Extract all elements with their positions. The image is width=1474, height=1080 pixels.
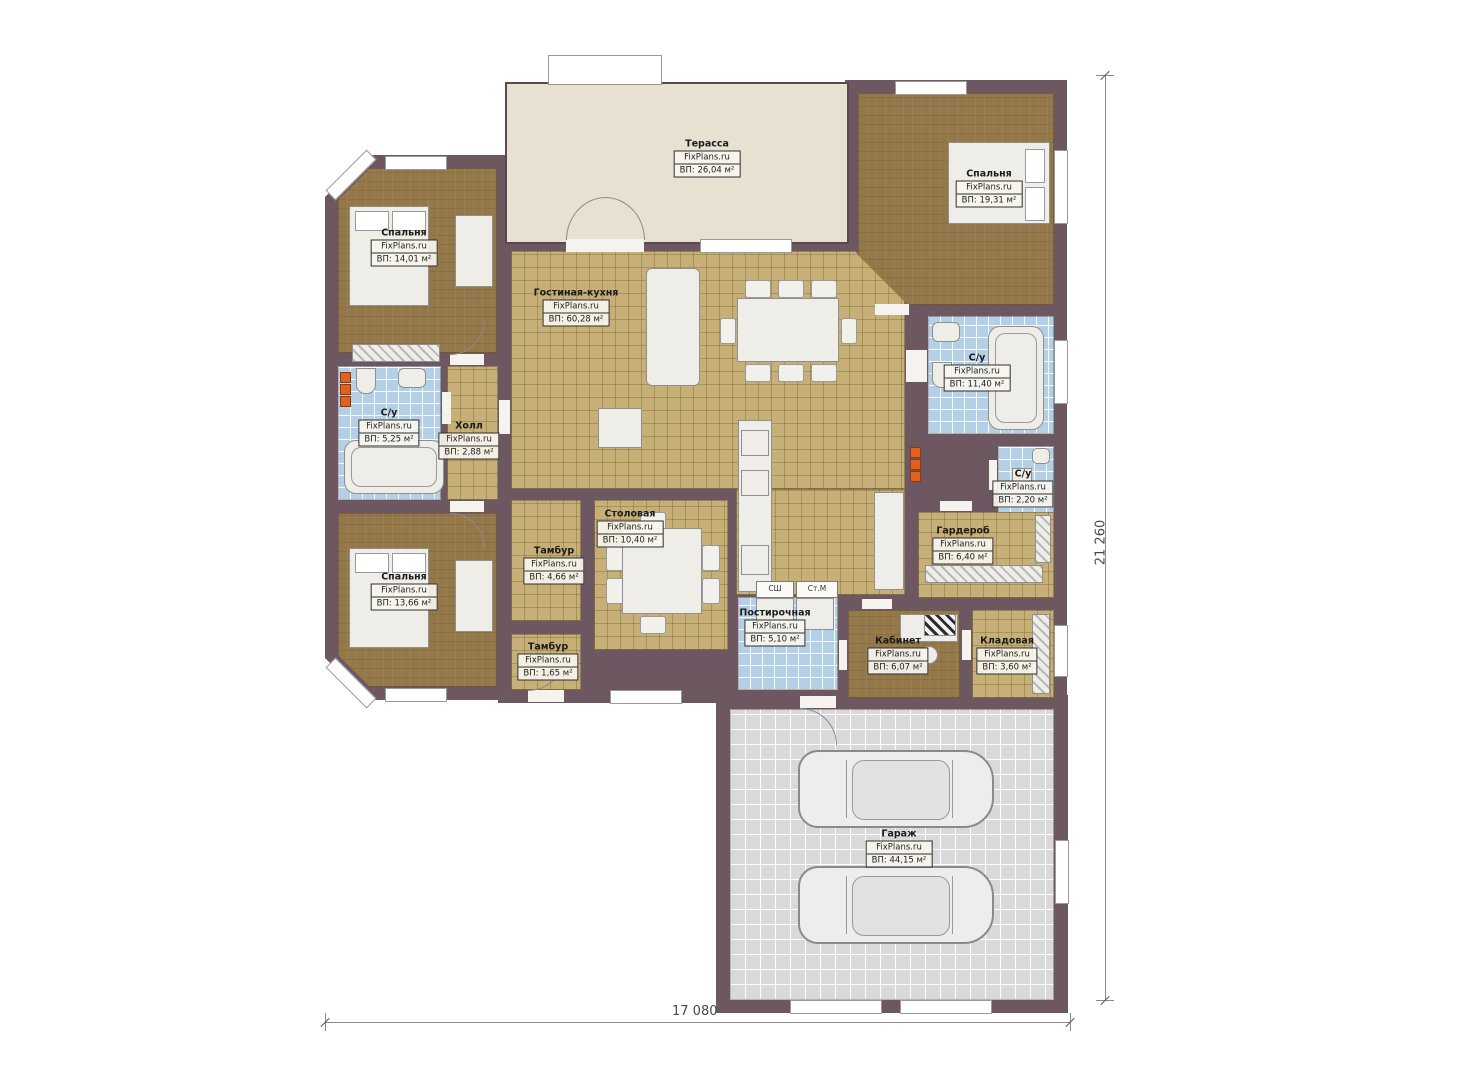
- room-label-wardrobe: Гардероб FixPlans.ru ВП: 6,40 м²: [932, 526, 993, 565]
- car-windshield: [846, 760, 847, 818]
- door-gap-storage: [962, 630, 971, 660]
- chair: [811, 364, 837, 382]
- room-area: ВП: 13,66 м²: [372, 598, 437, 610]
- room-area: ВП: 4,66 м²: [524, 572, 583, 584]
- window: [1054, 340, 1068, 404]
- car: [798, 866, 994, 944]
- door-gap-bathroom-right: [906, 350, 927, 382]
- brand-watermark: FixPlans.ru: [439, 434, 498, 447]
- window: [385, 156, 447, 170]
- brand-watermark: FixPlans.ru: [372, 241, 437, 254]
- brand-watermark: FixPlans.ru: [945, 366, 1010, 379]
- brand-watermark: FixPlans.ru: [372, 585, 437, 598]
- brand-watermark: FixPlans.ru: [957, 182, 1022, 195]
- heater-marker: [910, 471, 921, 482]
- dimension-width-label: 17 080: [672, 1004, 718, 1019]
- kitchen-counter: [874, 492, 904, 590]
- room-label-office: Кабинет FixPlans.ru ВП: 6,07 м²: [867, 636, 928, 675]
- window: [610, 690, 682, 704]
- bathtub-inner: [351, 447, 437, 487]
- room-label-laundry: Постирочная FixPlans.ru ВП: 5,10 м²: [739, 608, 810, 647]
- brand-watermark: FixPlans.ru: [598, 522, 663, 535]
- room-name: Спальня: [956, 169, 1023, 180]
- brand-watermark: FixPlans.ru: [675, 152, 740, 165]
- room-name: Кладовая: [976, 636, 1037, 647]
- room-label-vestibule: Тамбур FixPlans.ru ВП: 4,66 м²: [523, 546, 584, 585]
- sofa: [646, 268, 700, 386]
- garage-door-opening: [900, 1000, 992, 1014]
- heater-marker: [910, 447, 921, 458]
- room-area: ВП: 5,25 м²: [359, 434, 418, 446]
- brand-watermark: FixPlans.ru: [868, 649, 927, 662]
- room-label-garage: Гараж FixPlans.ru ВП: 44,15 м²: [866, 829, 933, 868]
- room-name: Тамбур: [517, 642, 578, 653]
- car-cabin: [852, 760, 950, 820]
- pillow: [355, 553, 389, 573]
- room-area: ВП: 2,20 м²: [993, 495, 1052, 507]
- car-cabin: [852, 876, 950, 936]
- door-gap-hall-living: [499, 400, 510, 434]
- wardrobe-unit: [455, 560, 493, 632]
- room-label-bedroom-bottom-left: Спальня FixPlans.ru ВП: 13,66 м²: [371, 572, 438, 611]
- dryer-label: СШ: [756, 581, 794, 598]
- window: [385, 688, 447, 702]
- room-label-bathroom-left: С/у FixPlans.ru ВП: 5,25 м²: [358, 408, 419, 447]
- floor-plan: СШ Ст.М Терасса FixPlans.ru ВП: 26,04 м²: [0, 0, 1474, 1080]
- door-gap-entrance: [528, 690, 564, 702]
- chair: [778, 364, 804, 382]
- room-name: Тамбур: [523, 546, 584, 557]
- chair: [745, 280, 771, 298]
- room-name: Постирочная: [739, 608, 810, 619]
- bathtub: [344, 440, 444, 494]
- pillow: [1025, 187, 1045, 221]
- pillow: [1025, 149, 1045, 183]
- door-gap-terrace: [566, 239, 644, 252]
- brand-watermark: FixPlans.ru: [524, 559, 583, 572]
- shelving: [1035, 515, 1051, 563]
- door-gap-office: [862, 599, 892, 609]
- brand-watermark: FixPlans.ru: [933, 539, 992, 552]
- window: [700, 239, 792, 253]
- door-gap-bedroom-bottom-left: [450, 501, 484, 512]
- door-gap-garage: [800, 696, 836, 708]
- room-area: ВП: 19,31 м²: [957, 195, 1022, 207]
- brand-watermark: FixPlans.ru: [867, 842, 932, 855]
- room-area: ВП: 5,10 м²: [745, 634, 804, 646]
- room-name: С/у: [944, 353, 1011, 364]
- pillow: [392, 553, 426, 573]
- room-label-dining: Столовая FixPlans.ru ВП: 10,40 м²: [597, 509, 664, 548]
- room-label-storage: Кладовая FixPlans.ru ВП: 3,60 м²: [976, 636, 1037, 675]
- room-area: ВП: 2,88 м²: [439, 447, 498, 459]
- window: [895, 81, 967, 95]
- kitchen-appliance: [741, 545, 769, 575]
- room-area: ВП: 14,01 м²: [372, 254, 437, 266]
- dimension-line-bottom: [325, 1022, 1070, 1023]
- room-area: ВП: 6,40 м²: [933, 552, 992, 564]
- room-area: ВП: 60,28 м²: [544, 314, 609, 326]
- heater-marker: [910, 459, 921, 470]
- sink: [932, 322, 960, 342]
- brand-watermark: FixPlans.ru: [518, 655, 577, 668]
- dimension-height-label: 21 260: [1093, 520, 1108, 566]
- heater-marker: [340, 384, 351, 395]
- room-name: Спальня: [371, 572, 438, 583]
- brand-watermark: FixPlans.ru: [544, 301, 609, 314]
- room-name: Гостиная-кухня: [534, 288, 619, 299]
- chair: [841, 318, 857, 344]
- door-gap-laundry: [839, 640, 847, 670]
- kitchen-appliance: [741, 430, 769, 456]
- door-gap-bedroom-top-right: [875, 304, 909, 315]
- room-area: ВП: 11,40 м²: [945, 379, 1010, 391]
- sink: [1032, 448, 1050, 464]
- chair: [778, 280, 804, 298]
- room-area: ВП: 26,04 м²: [675, 165, 740, 177]
- room-name: Терасса: [674, 139, 741, 150]
- room-label-vestibule-small: Тамбур FixPlans.ru ВП: 1,65 м²: [517, 642, 578, 681]
- room-name: С/у: [358, 408, 419, 419]
- brand-watermark: FixPlans.ru: [977, 649, 1036, 662]
- window: [1055, 840, 1069, 904]
- door-gap-bedroom-top-left: [450, 354, 484, 365]
- chair: [745, 364, 771, 382]
- car-rear-window: [952, 760, 953, 818]
- toilet: [356, 368, 376, 394]
- room-label-bedroom-top-left: Спальня FixPlans.ru ВП: 14,01 м²: [371, 228, 438, 267]
- brand-watermark: FixPlans.ru: [359, 421, 418, 434]
- chair: [811, 280, 837, 298]
- shelving: [925, 565, 1043, 583]
- chair: [702, 578, 720, 604]
- chair: [720, 318, 736, 344]
- brand-watermark: FixPlans.ru: [993, 482, 1052, 495]
- car-windshield: [846, 876, 847, 934]
- room-label-living-kitchen: Гостиная-кухня FixPlans.ru ВП: 60,28 м²: [534, 288, 619, 327]
- kitchen-island: [598, 408, 642, 448]
- heater-marker: [340, 396, 351, 407]
- room-area: ВП: 44,15 м²: [867, 855, 932, 867]
- chair: [702, 545, 720, 571]
- room-name: Гараж: [866, 829, 933, 840]
- dining-table: [737, 298, 839, 362]
- window: [1054, 150, 1068, 224]
- room-label-bathroom-small: С/у FixPlans.ru ВП: 2,20 м²: [992, 469, 1053, 508]
- chair: [640, 616, 666, 634]
- room-area: ВП: 10,40 м²: [598, 535, 663, 547]
- garage-door-opening: [790, 1000, 882, 1014]
- room-name: С/у: [992, 469, 1053, 480]
- door-gap-bathroom-left: [442, 392, 451, 424]
- car-rear-window: [952, 876, 953, 934]
- room-label-terrace: Терасса FixPlans.ru ВП: 26,04 м²: [674, 139, 741, 178]
- sink: [398, 368, 426, 388]
- closet: [352, 344, 440, 362]
- room-area: ВП: 6,07 м²: [868, 662, 927, 674]
- equipment: [924, 614, 956, 636]
- room-name: Холл: [438, 421, 499, 432]
- room-label-bedroom-top-right: Спальня FixPlans.ru ВП: 19,31 м²: [956, 169, 1023, 208]
- room-name: Кабинет: [867, 636, 928, 647]
- door-gap-wardrobe: [940, 501, 972, 511]
- washer-label: Ст.М: [796, 581, 838, 598]
- room-label-bathroom-right: С/у FixPlans.ru ВП: 11,40 м²: [944, 353, 1011, 392]
- heater-marker: [340, 372, 351, 383]
- brand-watermark: FixPlans.ru: [745, 621, 804, 634]
- room-name: Спальня: [371, 228, 438, 239]
- room-name: Гардероб: [932, 526, 993, 537]
- room-name: Столовая: [597, 509, 664, 520]
- room-area: ВП: 1,65 м²: [518, 668, 577, 680]
- wardrobe-unit: [455, 215, 493, 287]
- porch-step: [548, 55, 662, 85]
- car: [798, 750, 994, 828]
- room-area: ВП: 3,60 м²: [977, 662, 1036, 674]
- room-label-hall: Холл FixPlans.ru ВП: 2,88 м²: [438, 421, 499, 460]
- window: [1054, 625, 1068, 677]
- kitchen-appliance: [741, 470, 769, 496]
